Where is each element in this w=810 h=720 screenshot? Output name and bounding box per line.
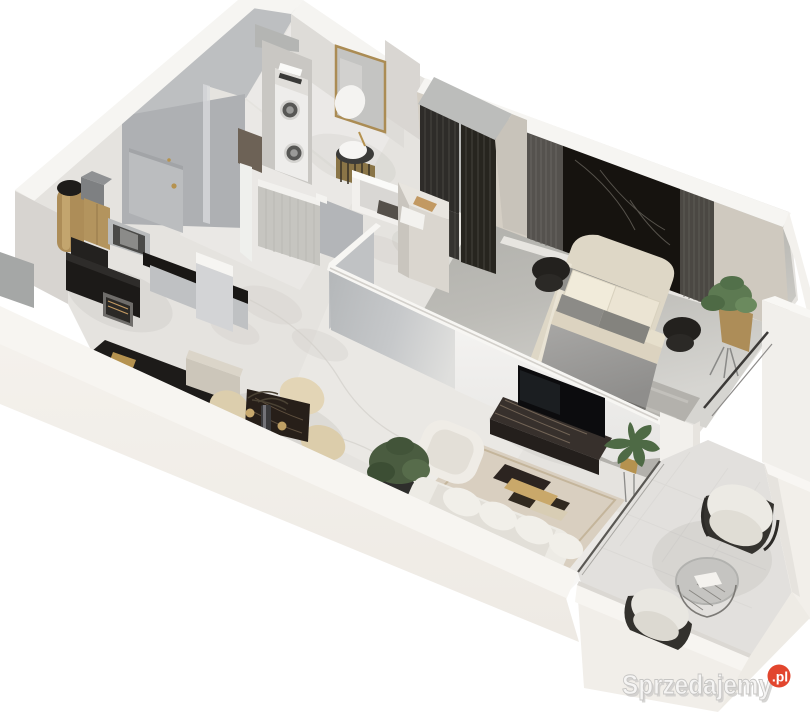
svg-text:.pl: .pl [772, 669, 788, 685]
svg-text:Sprzedajemy: Sprzedajemy [622, 669, 772, 700]
